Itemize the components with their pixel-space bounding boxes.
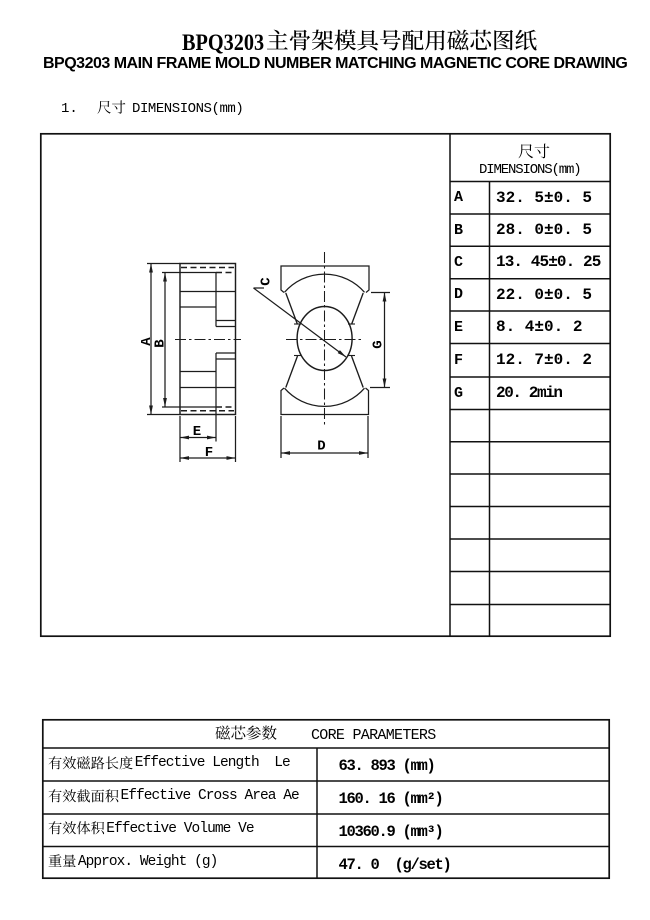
svg-text:C: C — [259, 277, 275, 286]
svg-text:E: E — [193, 424, 201, 440]
svg-text:F: F — [205, 445, 213, 461]
svg-text:G: G — [371, 340, 387, 348]
svg-text:B: B — [153, 339, 169, 348]
svg-text:D: D — [317, 439, 325, 455]
